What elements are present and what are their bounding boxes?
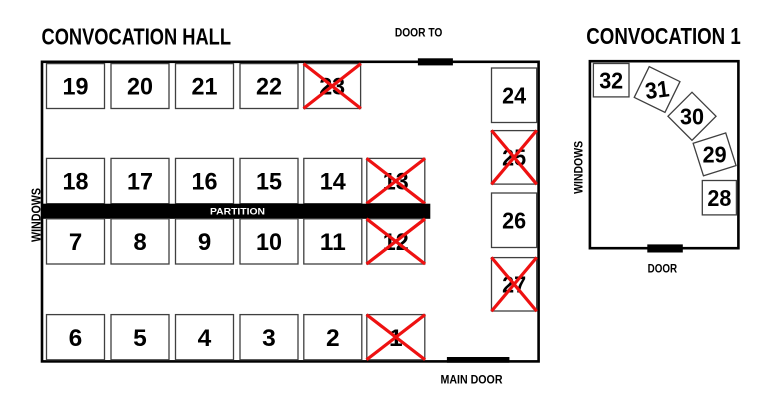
svg-text:15: 15 — [256, 169, 282, 196]
svg-text:17: 17 — [127, 169, 153, 196]
svg-text:CONVOCATION 1: CONVOCATION 1 — [586, 23, 741, 49]
svg-text:PARTITION: PARTITION — [210, 207, 265, 217]
svg-text:29: 29 — [703, 142, 727, 168]
svg-text:5: 5 — [133, 325, 147, 352]
svg-text:DOOR: DOOR — [648, 261, 678, 275]
svg-text:9: 9 — [198, 229, 211, 256]
svg-text:MAIN DOOR: MAIN DOOR — [441, 372, 503, 386]
svg-text:6: 6 — [69, 325, 83, 352]
svg-text:CONVOCATION HALL: CONVOCATION HALL — [42, 23, 232, 49]
svg-text:21: 21 — [192, 74, 218, 101]
svg-text:2: 2 — [326, 325, 340, 352]
svg-text:26: 26 — [502, 207, 526, 233]
svg-text:4: 4 — [198, 325, 212, 352]
svg-text:24: 24 — [502, 82, 526, 108]
svg-text:18: 18 — [63, 169, 89, 196]
svg-text:32: 32 — [599, 67, 623, 93]
svg-text:10: 10 — [256, 229, 282, 256]
svg-text:31: 31 — [644, 75, 671, 104]
svg-text:3: 3 — [262, 325, 276, 352]
svg-text:19: 19 — [63, 74, 89, 101]
svg-text:22: 22 — [256, 74, 282, 101]
svg-text:14: 14 — [320, 169, 346, 196]
svg-text:7: 7 — [69, 229, 82, 256]
svg-text:8: 8 — [133, 229, 146, 256]
svg-text:11: 11 — [320, 229, 346, 256]
svg-text:WINDOWS: WINDOWS — [574, 141, 586, 194]
svg-text:28: 28 — [707, 185, 731, 211]
svg-text:30: 30 — [680, 104, 704, 130]
svg-text:16: 16 — [192, 169, 218, 196]
svg-text:DOOR TO: DOOR TO — [395, 26, 443, 40]
svg-text:20: 20 — [127, 74, 153, 101]
svg-text:WINDOWS: WINDOWS — [30, 188, 44, 242]
